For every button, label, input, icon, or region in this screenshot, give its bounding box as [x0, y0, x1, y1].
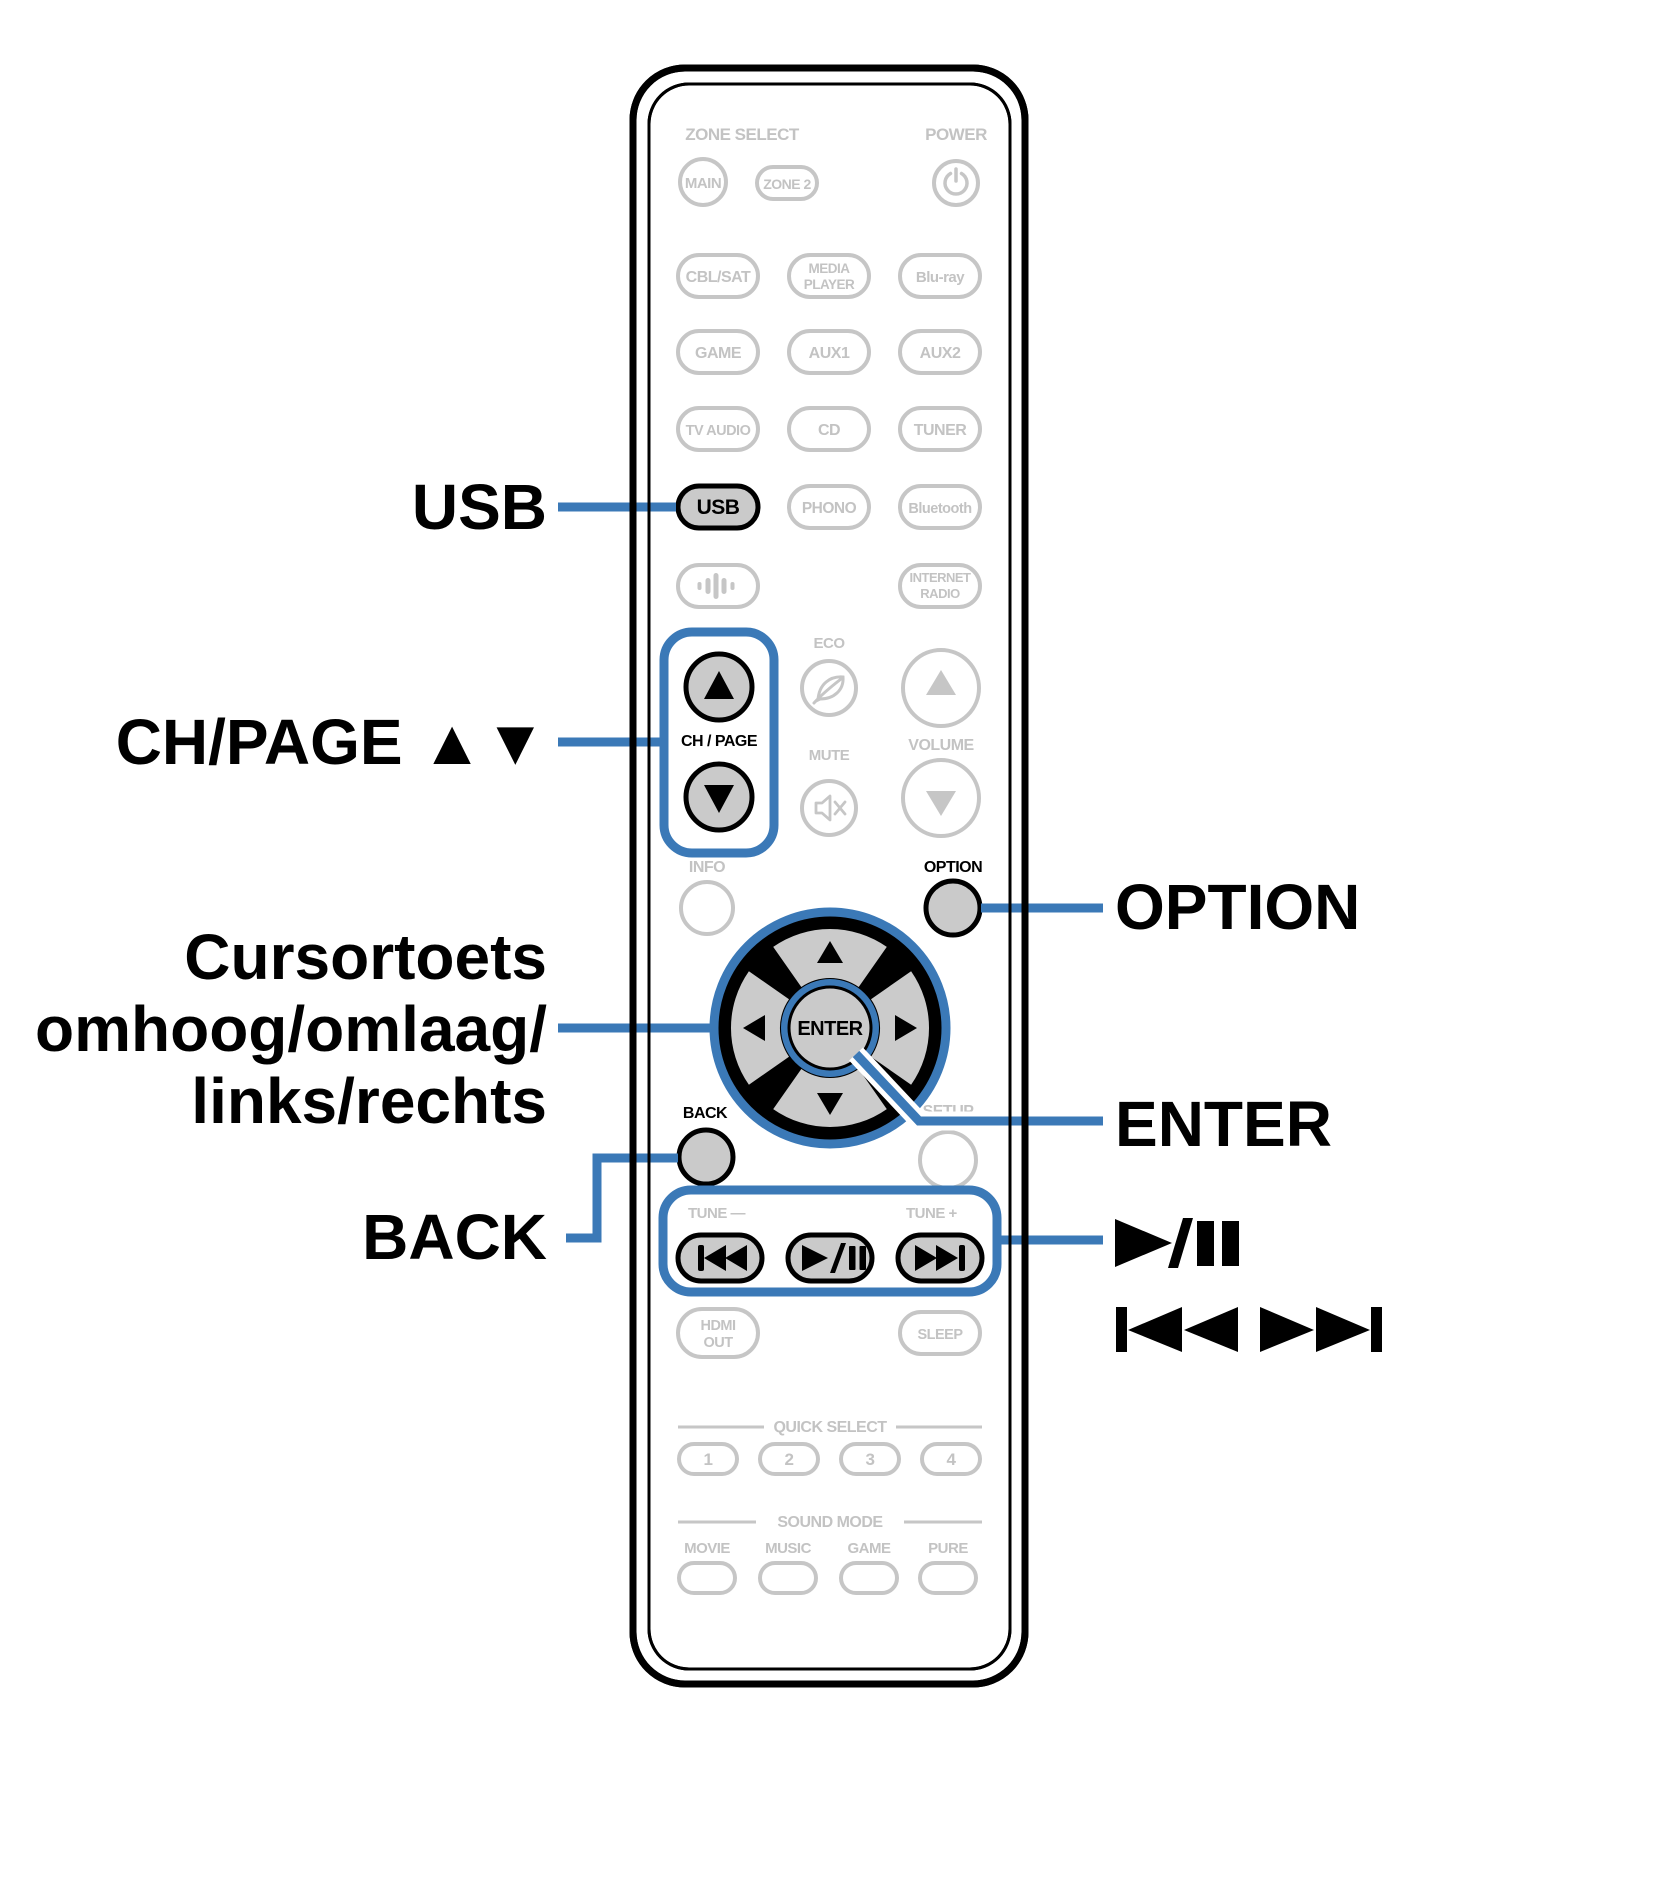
svg-text:GAME: GAME	[695, 345, 742, 362]
pure-button[interactable]	[920, 1563, 976, 1593]
tv-audio-button[interactable]: TV AUDIO	[678, 408, 758, 450]
quick-select-3-button[interactable]: 3	[841, 1444, 899, 1474]
power-label: POWER	[925, 125, 987, 144]
skip-forward-button[interactable]	[898, 1235, 982, 1281]
bluetooth-button[interactable]: Bluetooth	[900, 486, 980, 528]
mute-button[interactable]	[802, 781, 856, 835]
movie-label: MOVIE	[684, 1540, 730, 1557]
page: ZONE SELECT POWER MAIN ZONE 2 CBL/SAT ME…	[0, 0, 1665, 1878]
info-button[interactable]	[681, 882, 733, 934]
zone2-button[interactable]: ZONE 2	[757, 167, 817, 199]
svg-text:INTERNET: INTERNET	[910, 570, 972, 585]
svg-text:Bluetooth: Bluetooth	[908, 501, 971, 517]
setup-button[interactable]	[920, 1132, 976, 1188]
svg-text:CBL/SAT: CBL/SAT	[686, 269, 751, 286]
ch-page-callout-label: CH/PAGE ▲▼	[116, 706, 547, 778]
sleep-button[interactable]: SLEEP	[900, 1312, 980, 1354]
svg-text:PLAYER: PLAYER	[804, 277, 855, 292]
game-mode-label: GAME	[848, 1540, 891, 1557]
volume-down-button[interactable]	[903, 760, 979, 836]
tune-minus-label: TUNE —	[688, 1205, 746, 1222]
skip-back-forward-callout-icon	[1116, 1307, 1382, 1352]
svg-text:USB: USB	[697, 496, 740, 519]
play-pause-callout-icon	[1115, 1218, 1239, 1268]
option-button[interactable]	[926, 881, 980, 935]
internet-radio-button[interactable]: INTERNET RADIO	[900, 565, 980, 607]
svg-text:PHONO: PHONO	[802, 500, 857, 517]
svg-text:4: 4	[947, 1450, 957, 1469]
network-audio-button[interactable]	[678, 565, 758, 607]
cursor-callout-line3: links/rechts	[35, 1065, 547, 1137]
music-button[interactable]	[760, 1563, 816, 1593]
info-label: INFO	[689, 859, 725, 876]
hdmi-out-button[interactable]: HDMI OUT	[678, 1309, 758, 1357]
music-label: MUSIC	[765, 1540, 812, 1557]
svg-text:RADIO: RADIO	[920, 586, 960, 601]
mute-label: MUTE	[809, 747, 850, 764]
svg-text:Blu-ray: Blu-ray	[916, 269, 965, 286]
back-button-label: BACK	[683, 1105, 728, 1122]
cbl-sat-button[interactable]: CBL/SAT	[678, 255, 758, 297]
back-callout-label: BACK	[362, 1201, 547, 1273]
eco-label: ECO	[813, 635, 845, 652]
zone-select-label: ZONE SELECT	[685, 125, 800, 144]
usb-button[interactable]: USB	[678, 486, 758, 528]
cursor-callout-line1: Cursortoets	[35, 921, 547, 993]
svg-text:AUX2: AUX2	[920, 345, 961, 362]
game-mode-button[interactable]	[841, 1563, 897, 1593]
quick-select-4-button[interactable]: 4	[922, 1444, 980, 1474]
svg-text:TV AUDIO: TV AUDIO	[686, 423, 751, 439]
option-button-label: OPTION	[924, 859, 982, 876]
quick-select-1-button[interactable]: 1	[679, 1444, 737, 1474]
enter-callout-label: ENTER	[1115, 1088, 1332, 1160]
ch-page-button-label: CH / PAGE	[681, 733, 758, 750]
aux1-button[interactable]: AUX1	[789, 331, 869, 373]
option-callout-label: OPTION	[1115, 871, 1360, 943]
tune-plus-label: TUNE +	[906, 1205, 958, 1222]
media-player-button[interactable]: MEDIA PLAYER	[789, 255, 869, 297]
usb-callout-label: USB	[412, 471, 547, 543]
svg-text:OUT: OUT	[703, 1335, 733, 1351]
pure-label: PURE	[928, 1540, 968, 1557]
quick-select-2-button[interactable]: 2	[760, 1444, 818, 1474]
svg-text:ZONE 2: ZONE 2	[763, 176, 811, 192]
svg-text:ENTER: ENTER	[797, 1018, 863, 1040]
svg-text:CD: CD	[818, 422, 840, 439]
bluray-button[interactable]: Blu-ray	[900, 255, 980, 297]
svg-text:SLEEP: SLEEP	[917, 1327, 963, 1343]
back-button[interactable]	[679, 1130, 733, 1184]
main-button[interactable]: MAIN	[680, 159, 726, 205]
cursor-callout-label: Cursortoets omhoog/omlaag/ links/rechts	[35, 921, 547, 1137]
svg-text:3: 3	[866, 1450, 875, 1469]
quick-select-label: QUICK SELECT	[773, 1419, 887, 1436]
cursor-callout-line2: omhoog/omlaag/	[35, 993, 547, 1065]
volume-label: VOLUME	[908, 737, 974, 754]
play-pause-button[interactable]	[788, 1235, 872, 1281]
svg-text:MAIN: MAIN	[685, 175, 721, 192]
volume-up-button[interactable]	[903, 650, 979, 726]
remote-body	[633, 68, 1025, 1684]
tuner-button[interactable]: TUNER	[900, 408, 980, 450]
eco-button[interactable]	[802, 661, 856, 715]
svg-text:1: 1	[704, 1450, 713, 1469]
game-button[interactable]: GAME	[678, 331, 758, 373]
svg-text:2: 2	[785, 1450, 794, 1469]
channel-page-down-button[interactable]	[686, 764, 752, 830]
svg-text:AUX1: AUX1	[809, 345, 850, 362]
svg-text:TUNER: TUNER	[914, 422, 968, 439]
aux2-button[interactable]: AUX2	[900, 331, 980, 373]
cd-button[interactable]: CD	[789, 408, 869, 450]
phono-button[interactable]: PHONO	[789, 486, 869, 528]
svg-text:HDMI: HDMI	[700, 1318, 736, 1334]
sound-mode-label: SOUND MODE	[777, 1514, 883, 1531]
svg-text:MEDIA: MEDIA	[809, 261, 851, 276]
movie-button[interactable]	[679, 1563, 735, 1593]
skip-back-button[interactable]	[678, 1235, 762, 1281]
power-button[interactable]	[934, 161, 978, 205]
channel-page-up-button[interactable]	[686, 654, 752, 720]
